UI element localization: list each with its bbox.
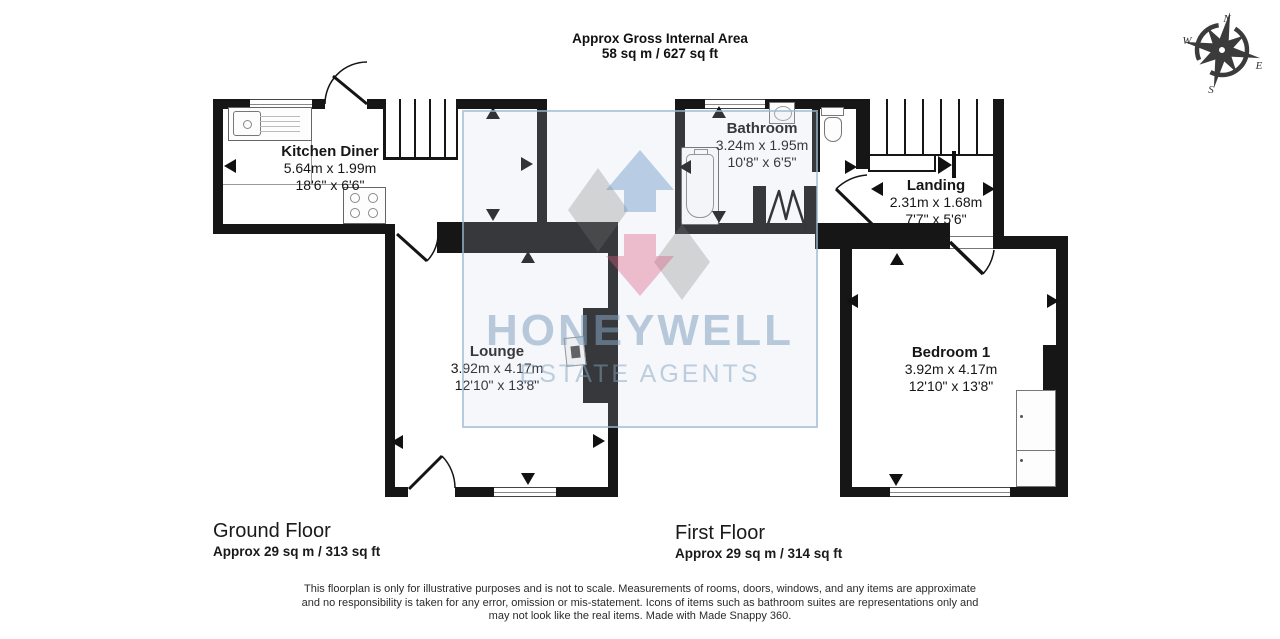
hob-burner	[350, 193, 360, 203]
front-door-opening	[325, 99, 367, 109]
floorplan-page: Approx Gross Internal Area 58 sq m / 627…	[0, 0, 1280, 639]
disclaimer-line3: may not look like the real items. Made w…	[489, 610, 792, 624]
title-line1: Approx Gross Internal Area	[572, 31, 748, 46]
bath-tap	[694, 149, 708, 155]
direction-marker	[889, 474, 903, 486]
compass-rose-icon: N W E S	[1176, 4, 1269, 97]
door-arc	[983, 250, 994, 274]
door-leaf	[836, 189, 872, 224]
direction-marker	[391, 435, 403, 449]
banister	[868, 154, 936, 172]
room-label-lounge: Lounge 3.92m x 4.17m 12'10" x 13'8"	[451, 343, 544, 394]
compass-point-ne	[1222, 31, 1245, 54]
compass-point-s	[1208, 51, 1227, 90]
wall-segment	[213, 224, 395, 234]
compass-label-n: N	[1222, 13, 1231, 25]
brand-logo-icon	[0, 0, 1280, 639]
direction-marker	[486, 209, 500, 221]
wall-segment	[812, 99, 820, 172]
compass-point-nw	[1203, 27, 1226, 50]
compass-label-s: S	[1208, 84, 1214, 96]
door-arc	[442, 456, 455, 488]
direction-marker	[983, 182, 995, 196]
compass-hub	[1213, 41, 1231, 59]
room-label-landing: Landing 2.31m x 1.68m 7'7" x 5'6"	[890, 177, 983, 228]
compass-point-n	[1217, 11, 1236, 50]
window	[890, 487, 1010, 497]
lounge-door-opening	[408, 487, 455, 497]
direction-marker	[712, 106, 726, 118]
door-arc	[325, 62, 367, 104]
direction-marker	[845, 160, 857, 174]
room-label-kitchen: Kitchen Diner 5.64m x 1.99m 18'6" x 6'6"	[281, 143, 379, 194]
disclaimer-line1: This floorplan is only for illustrative …	[304, 583, 976, 597]
wardrobe-divider	[1017, 450, 1055, 451]
first-floor-area: Approx 29 sq m / 314 sq ft	[675, 546, 842, 561]
door-leaf	[409, 456, 442, 489]
direction-marker	[521, 251, 535, 263]
compass-label-e: E	[1255, 60, 1263, 72]
bifold-door-stub	[804, 186, 817, 226]
direction-marker	[521, 473, 535, 485]
compass-hub-hole	[1218, 46, 1225, 53]
compass-ring	[1192, 20, 1251, 79]
stairs-arrow	[938, 156, 952, 174]
direction-marker	[486, 107, 500, 119]
staircase	[868, 99, 993, 156]
room-label-bathroom: Bathroom 3.24m x 1.95m 10'8" x 6'5"	[716, 120, 809, 171]
hob-burner	[368, 208, 378, 218]
wall-segment	[537, 99, 547, 232]
wall-segment	[437, 222, 618, 253]
wall-segment	[213, 99, 223, 234]
chimney-breast	[583, 308, 610, 403]
door-leaf	[397, 234, 427, 261]
wall-segment	[993, 99, 1004, 249]
logo-diamond	[654, 224, 710, 300]
direction-marker	[521, 157, 533, 171]
compass-label-w: W	[1182, 35, 1192, 47]
wall-segment	[840, 236, 852, 497]
wardrobe	[1016, 390, 1056, 487]
disclaimer-line2: and no responsibility is taken for any e…	[302, 597, 979, 611]
staircase	[383, 99, 458, 160]
direction-marker	[890, 253, 904, 265]
chimney-breast	[1043, 345, 1056, 392]
basin-bowl	[774, 106, 792, 121]
watermark: HONEYWELL ESTATE AGENTS	[0, 0, 1280, 639]
bedroom-door-opening	[950, 236, 993, 249]
gross-internal-area-title: Approx Gross Internal Area 58 sq m / 627…	[572, 31, 748, 61]
hob-burner	[350, 208, 360, 218]
logo-up-arrow-icon	[606, 150, 674, 212]
direction-marker	[679, 160, 691, 174]
watermark-tagline-text: ESTATE AGENTS	[520, 360, 761, 389]
direction-marker	[712, 211, 726, 223]
title-line2: 58 sq m / 627 sq ft	[572, 46, 748, 61]
linework-overlay: N W E S	[0, 0, 1280, 639]
direction-marker	[871, 182, 883, 196]
compass-point-sw	[1199, 46, 1222, 69]
wall-segment	[1056, 236, 1068, 497]
compass-star	[1176, 4, 1269, 97]
wall-segment	[385, 224, 395, 497]
hob-burner	[368, 193, 378, 203]
direction-marker	[846, 294, 858, 308]
toilet-bowl	[824, 117, 842, 142]
room-label-bedroom1: Bedroom 1 3.92m x 4.17m 12'10" x 13'8"	[905, 344, 998, 395]
sink-drain	[243, 120, 252, 129]
wardrobe-handle	[1020, 459, 1023, 462]
sink-drainer	[260, 112, 300, 136]
door-arc	[836, 175, 867, 189]
compass-point-e	[1223, 45, 1262, 64]
ground-floor-caption: Ground Floor	[213, 520, 331, 543]
compass-point-se	[1218, 50, 1241, 73]
ground-floor-area: Approx 29 sq m / 313 sq ft	[213, 544, 380, 559]
wardrobe-handle	[1020, 415, 1023, 418]
first-floor-caption: First Floor	[675, 522, 765, 545]
direction-marker	[224, 159, 236, 173]
toilet-cistern	[821, 107, 844, 116]
direction-marker	[1047, 294, 1059, 308]
window	[494, 487, 556, 497]
tv-icon	[564, 336, 587, 367]
bifold-door-stub	[753, 186, 766, 226]
compass-point-w	[1183, 36, 1222, 55]
direction-marker	[593, 434, 605, 448]
